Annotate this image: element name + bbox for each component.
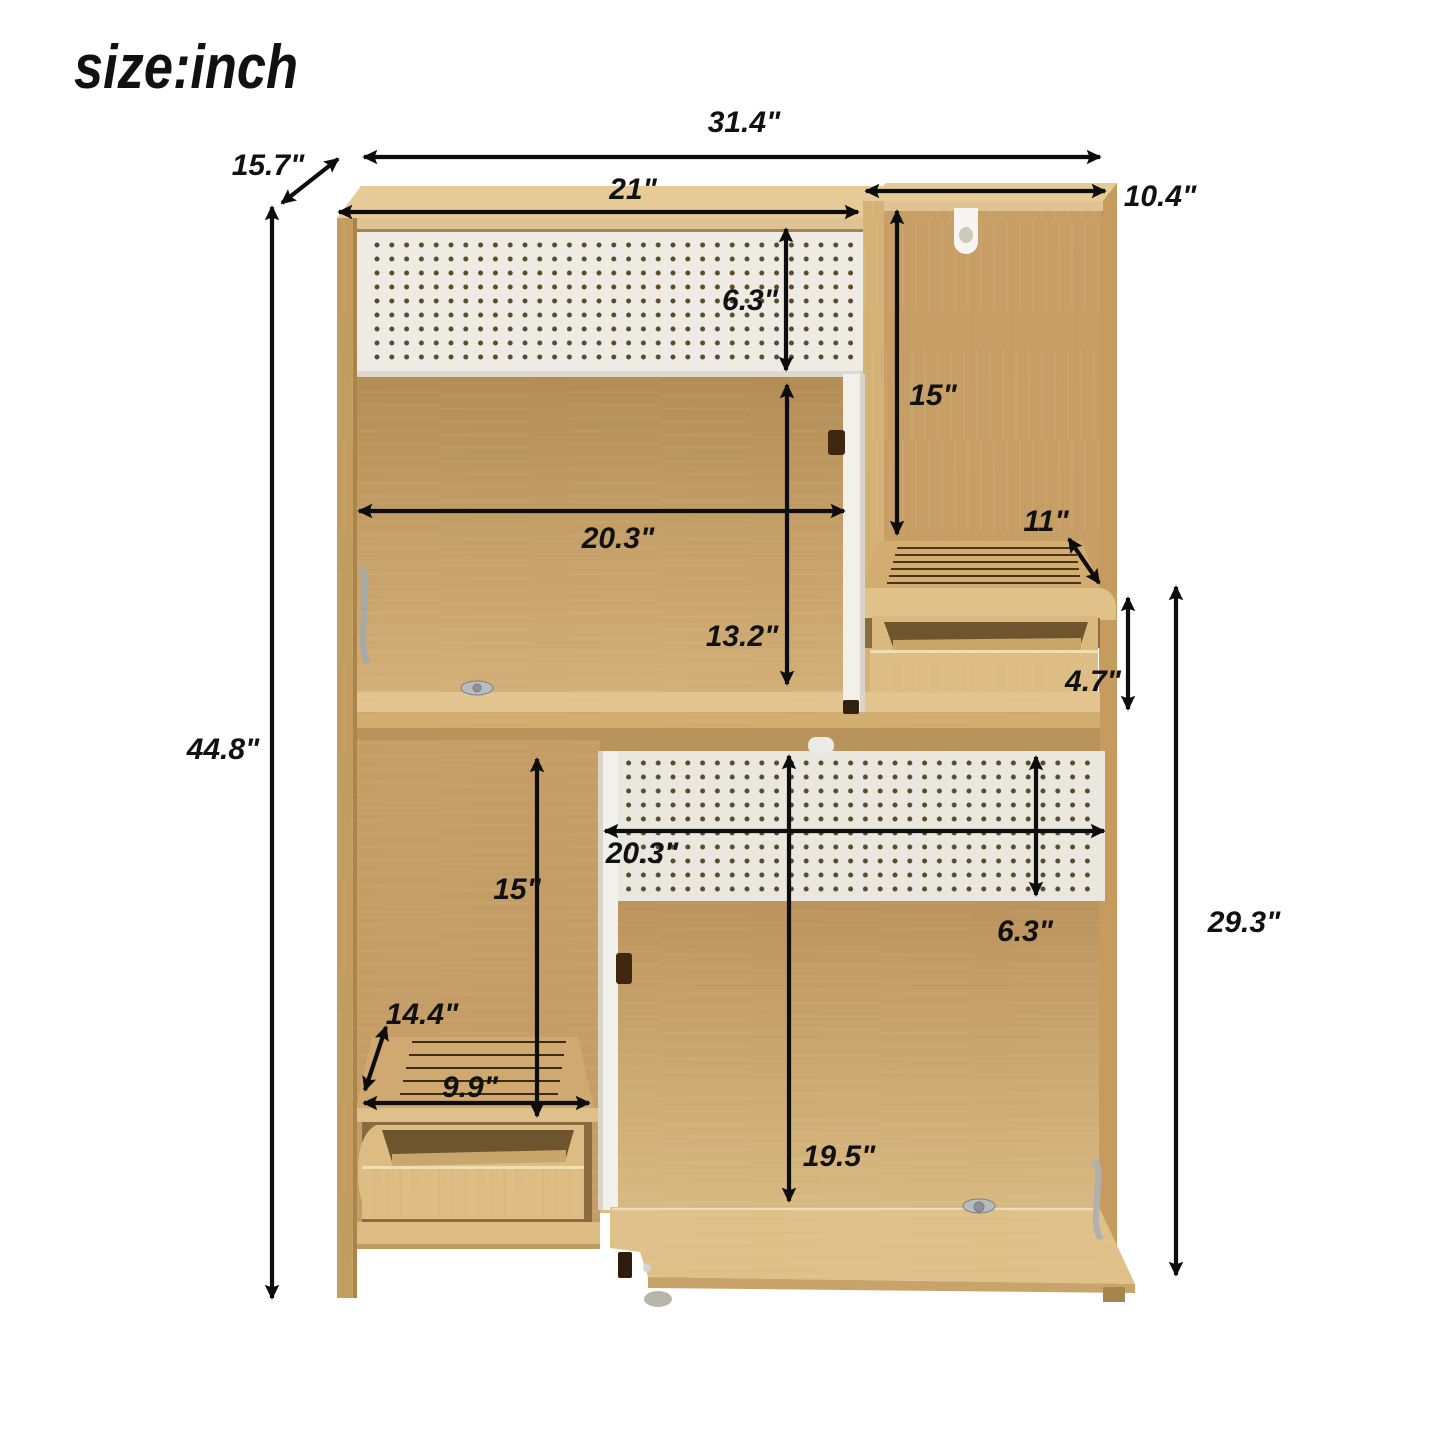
svg-text:14.4": 14.4" (386, 998, 459, 1031)
svg-text:15.7": 15.7" (232, 149, 305, 182)
svg-text:6.3": 6.3" (997, 915, 1054, 948)
svg-text:9.9": 9.9" (442, 1071, 499, 1104)
svg-text:20.3": 20.3" (581, 522, 655, 555)
svg-text:11": 11" (1023, 505, 1069, 538)
svg-text:10.4": 10.4" (1124, 180, 1197, 213)
svg-text:21": 21" (608, 173, 657, 206)
svg-text:size:inch: size:inch (74, 33, 298, 102)
svg-text:13.2": 13.2" (706, 620, 779, 653)
svg-text:20.3": 20.3" (605, 837, 679, 870)
svg-text:31.4": 31.4" (708, 106, 781, 139)
svg-text:4.7": 4.7" (1064, 665, 1122, 698)
svg-text:29.3": 29.3" (1207, 906, 1281, 939)
svg-text:6.3": 6.3" (722, 284, 779, 317)
svg-text:19.5": 19.5" (803, 1140, 876, 1173)
svg-text:15": 15" (493, 873, 541, 906)
svg-text:15": 15" (909, 379, 957, 412)
svg-text:44.8": 44.8" (186, 733, 260, 766)
